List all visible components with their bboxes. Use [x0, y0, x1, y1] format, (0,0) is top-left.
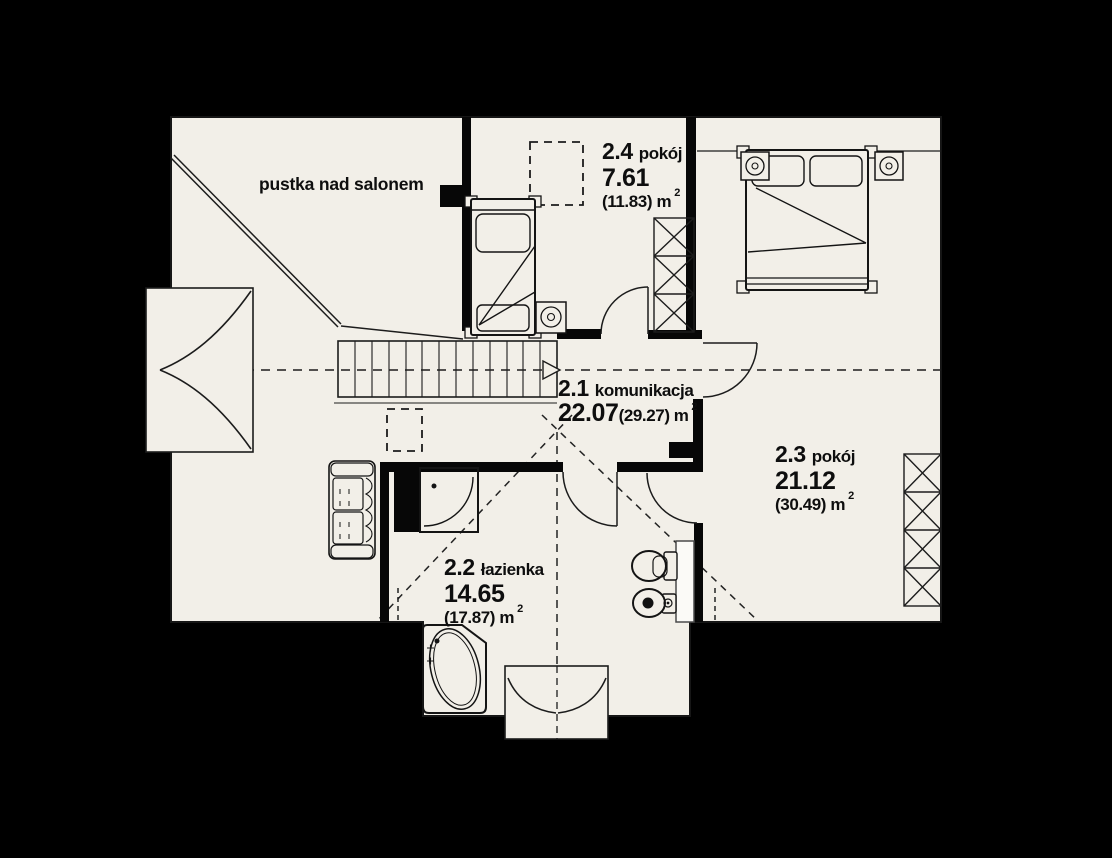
- room-area-unit: m: [674, 406, 689, 425]
- room-name: łazienka: [481, 560, 544, 579]
- room-area: 14.65: [444, 581, 544, 607]
- room-number: 2.2: [444, 554, 475, 580]
- room-number: 2.3: [775, 441, 806, 467]
- single-bed: [465, 196, 541, 338]
- nightstand-room24: [536, 302, 566, 333]
- room-area: 7.61: [602, 165, 682, 191]
- room-name: komunikacja: [595, 381, 694, 400]
- room-area-sup: 2: [848, 490, 854, 502]
- wall-bath-west: [380, 462, 389, 622]
- wall-stub-hall: [669, 442, 693, 458]
- wall-shower-block: [394, 470, 420, 532]
- floor-plan-canvas: pustka nad salonem 2.4pokój 7.61 (11.83)…: [0, 0, 1112, 858]
- room-label-2-2: 2.2łazienka 14.65 (17.87) m2: [444, 555, 544, 627]
- room-area-sup: 2: [674, 187, 680, 199]
- wall-bath-north-right: [617, 462, 703, 472]
- room-area-unit: m: [656, 192, 671, 211]
- room-name: pokój: [639, 144, 682, 163]
- void-label: pustka nad salonem: [259, 174, 424, 195]
- room-label-2-1: 2.1komunikacja 22.07(29.27) m2: [558, 376, 697, 426]
- room-label-2-3: 2.3pokój 21.12 (30.49) m2: [775, 442, 855, 514]
- wall-bath-east: [694, 523, 703, 622]
- room-area-total: (17.87): [444, 608, 495, 627]
- floor-plan-drawing: [0, 0, 1112, 858]
- room-area-total: (11.83): [602, 192, 652, 211]
- room-area: 21.12: [775, 468, 855, 494]
- nightstand-room23-right: [875, 152, 903, 180]
- room-area-unit: m: [499, 608, 514, 627]
- toilet: [632, 551, 677, 581]
- room-area-sup: 2: [517, 603, 523, 615]
- room-name: pokój: [812, 447, 855, 466]
- room-area-sup: 2: [691, 401, 697, 413]
- room-area-total: (30.49): [775, 495, 826, 514]
- nightstand-room23-left: [741, 152, 769, 180]
- french-door-west: [146, 288, 253, 452]
- french-door-south: [505, 666, 608, 739]
- room-area-total: (29.27): [619, 406, 670, 425]
- room-number: 2.1: [558, 375, 589, 401]
- wall-room24-west: [462, 117, 471, 331]
- room-area: 22.07: [558, 399, 619, 427]
- room-number: 2.4: [602, 138, 633, 164]
- room-area-unit: m: [830, 495, 845, 514]
- wall-chimney-stub: [440, 185, 463, 207]
- room-label-2-4: 2.4pokój 7.61 (11.83) m2: [602, 139, 682, 211]
- installation-shaft: [676, 541, 694, 622]
